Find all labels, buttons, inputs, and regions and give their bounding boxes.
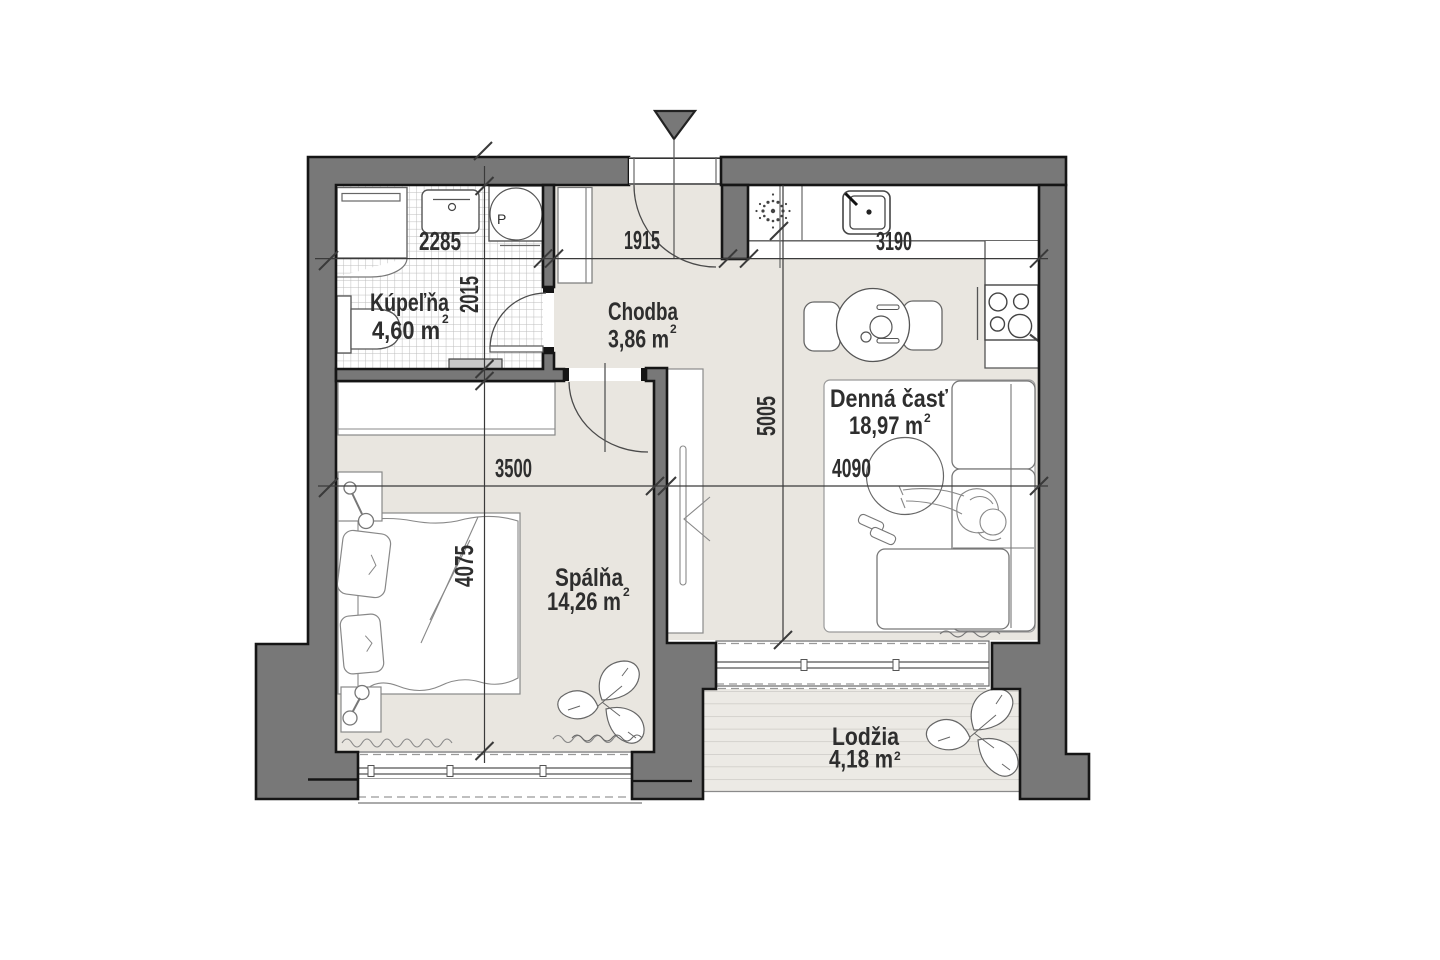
svg-text:3500: 3500	[495, 453, 532, 483]
svg-text:4,18 m: 4,18 m	[829, 746, 893, 774]
svg-text:Denná časť: Denná časť	[830, 385, 948, 413]
svg-text:2: 2	[670, 322, 677, 336]
svg-text:14,26 m: 14,26 m	[547, 588, 621, 616]
svg-text:5005: 5005	[751, 396, 781, 436]
svg-text:4075: 4075	[449, 545, 479, 587]
svg-text:1915: 1915	[624, 225, 660, 255]
svg-text:2015: 2015	[454, 276, 484, 313]
svg-text:3,86 m: 3,86 m	[608, 326, 669, 354]
svg-text:18,97 m: 18,97 m	[849, 412, 923, 440]
svg-text:2: 2	[924, 411, 931, 425]
svg-text:2285: 2285	[419, 226, 461, 256]
svg-text:3190: 3190	[876, 226, 912, 256]
svg-text:4090: 4090	[832, 453, 871, 483]
svg-text:4,60 m: 4,60 m	[372, 317, 440, 345]
svg-text:Kúpeľňa: Kúpeľňa	[370, 289, 450, 317]
svg-text:2: 2	[442, 312, 449, 326]
svg-text:Chodba: Chodba	[608, 298, 679, 326]
svg-text:2: 2	[894, 749, 901, 763]
svg-text:P: P	[497, 211, 506, 227]
svg-text:2: 2	[623, 585, 630, 599]
